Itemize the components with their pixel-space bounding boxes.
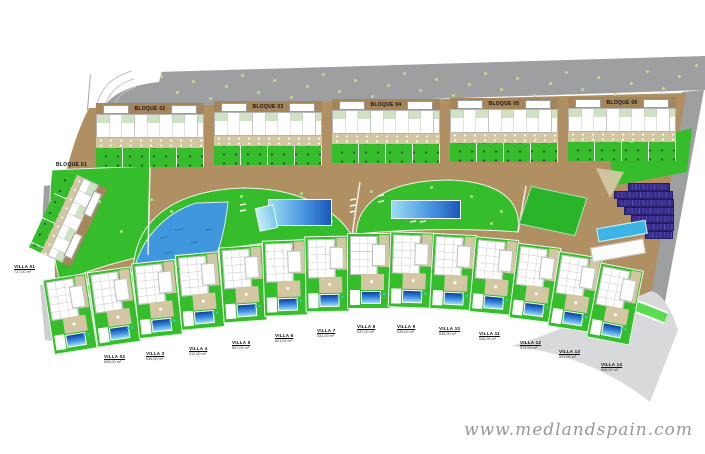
community-pool-west: [268, 199, 332, 226]
lounger-icon: [581, 315, 583, 317]
villa-house-annex: [414, 243, 429, 265]
lounger-icon: [424, 292, 426, 294]
villa-label-4: VILLA 4512,00 m²: [189, 346, 231, 356]
villa-terrace: [361, 274, 384, 290]
villa-pool-deck: [350, 290, 360, 305]
bloque-01-label: BLOQUE 01: [56, 162, 87, 168]
lounger-icon: [379, 293, 381, 295]
bloque-lawn: [450, 143, 558, 162]
villa-plot-7: [304, 236, 349, 313]
bloque-05: BLOQUE 05: [450, 98, 558, 162]
tree-icon: [470, 195, 473, 198]
lounger-icon: [87, 333, 89, 335]
lounger-icon: [466, 295, 468, 297]
bloque-terraces: [332, 134, 440, 144]
villa-pool-deck: [140, 319, 152, 335]
solar-row: [614, 191, 673, 199]
lounger-icon: [296, 300, 298, 302]
lounger-icon: [624, 328, 626, 330]
villa-label-13: VILLA 13591,00 m²: [559, 349, 601, 359]
bloque-roof: BLOQUE 06: [568, 97, 676, 108]
villa-label-11: VILLA 11536,00 m²: [479, 331, 521, 341]
tree-icon: [484, 72, 487, 75]
tree-icon: [241, 74, 244, 77]
lounger-icon: [462, 294, 464, 296]
tree-icon: [695, 64, 698, 67]
villa-label-9: VILLA 9539,00 m²: [397, 324, 439, 334]
villa-area: 605,00 m²: [104, 360, 146, 365]
tree-icon: [468, 83, 471, 86]
tree-icon: [614, 93, 617, 96]
bloque-lawn: [332, 144, 440, 163]
villa-pool-deck: [391, 288, 402, 303]
bloque-label: BLOQUE 02: [96, 106, 204, 112]
villa-pool-deck: [267, 297, 278, 312]
villa-plot-5: [218, 245, 267, 324]
villa-label-3: VILLA 3536,00 m²: [146, 351, 188, 361]
lounger-icon: [300, 299, 302, 301]
villa-terrace: [444, 275, 468, 292]
tree-icon: [120, 230, 123, 233]
bloque-terraces: [96, 138, 204, 148]
tree-icon: [98, 200, 101, 203]
bloque-lawn: [96, 148, 204, 167]
watermark: www.medlandspain.com: [464, 420, 693, 440]
lounger-icon: [337, 296, 339, 298]
bloque-roof: BLOQUE 02: [96, 103, 204, 114]
villa-plot-9: [388, 231, 435, 308]
villa-label-12: VILLA 12574,00 m²: [520, 340, 562, 350]
bloque-lawn: [214, 146, 322, 165]
tree-icon: [160, 75, 163, 78]
tree-icon: [209, 97, 212, 100]
bloque-04: BLOQUE 04: [332, 99, 440, 163]
villa-terrace: [277, 280, 301, 297]
villa-area: 531,00 m²: [317, 334, 359, 339]
lounger-icon: [546, 307, 548, 309]
villa-area: 539,00 m²: [397, 330, 439, 335]
lounger-icon: [502, 299, 504, 301]
bloque-roof: BLOQUE 05: [450, 98, 558, 109]
tree-icon: [660, 135, 663, 138]
villa-label-8: VILLA 8537,00 m²: [357, 324, 399, 334]
solar-row: [624, 207, 674, 215]
villa-pool-deck: [98, 327, 110, 343]
villa-terrace: [149, 300, 174, 318]
villa-terrace: [319, 277, 342, 293]
villa-area: 536,00 m²: [146, 357, 188, 362]
lounger-icon: [341, 296, 343, 298]
lounger-icon: [169, 320, 171, 322]
tree-icon: [306, 85, 309, 88]
lounger-icon: [620, 328, 622, 330]
solar-row: [645, 231, 673, 239]
villa-pool-deck: [308, 293, 318, 308]
villa-terrace: [525, 285, 550, 304]
villa-pool: [562, 311, 584, 327]
villa-pool-deck: [225, 304, 236, 320]
lounger-icon: [83, 334, 85, 336]
villa-area: 512,00 m²: [189, 352, 231, 357]
lounger-icon: [383, 293, 385, 295]
villa-house-annex: [157, 270, 173, 293]
tree-icon: [500, 210, 503, 213]
villa-pool: [523, 302, 544, 317]
tree-icon: [150, 198, 153, 201]
tree-icon: [533, 94, 536, 97]
bloque-02: BLOQUE 02: [96, 103, 204, 167]
bloque-building: [450, 109, 558, 133]
bloque-terraces: [450, 133, 558, 143]
tree-icon: [170, 210, 173, 213]
tree-icon: [387, 84, 390, 87]
solar-row: [628, 183, 670, 191]
villa-house-annex: [539, 257, 556, 281]
bloque-building: [96, 114, 204, 138]
bloque-06: BLOQUE 06: [568, 97, 676, 161]
villa-label-14: VILLA 14608,00 m²: [601, 362, 643, 372]
villa-terrace: [192, 293, 216, 311]
villa-area: 538,00 m²: [439, 332, 481, 337]
villa-pool-deck: [183, 311, 194, 327]
villa-pool-deck: [432, 290, 443, 306]
lounger-icon: [255, 305, 257, 307]
villa-house-annex: [287, 250, 302, 272]
villa-area: 574,00 m²: [520, 346, 562, 351]
tree-icon: [257, 91, 260, 94]
villa-area: 537,00 m²: [357, 330, 399, 335]
bloque-roof: BLOQUE 03: [214, 101, 322, 112]
villa-plot-4: [175, 251, 225, 331]
bloque-building: [568, 108, 676, 132]
site-plan: BLOQUE 01 BLOQUE 02BLOQUE 03BLOQUE 04BLO…: [0, 0, 705, 454]
lounger-icon: [131, 327, 133, 329]
villa-label-1: VILLA 01727,00 m²: [14, 264, 56, 274]
lounger-icon: [212, 312, 214, 314]
villa-plot-8: [347, 233, 391, 309]
tree-icon: [630, 140, 633, 143]
bloque-terraces: [214, 136, 322, 146]
villa-house-annex: [201, 263, 217, 286]
villa-label-6: VILLA 6521,00 m²: [275, 333, 317, 343]
villa-house-annex: [456, 245, 471, 268]
villa-pool: [601, 322, 623, 339]
tree-icon: [371, 95, 374, 98]
villa-area: 536,00 m²: [479, 337, 521, 342]
bloque-03: BLOQUE 03: [214, 101, 322, 165]
villa-terrace: [484, 278, 508, 296]
villa-label-2: VILLA 02605,00 m²: [104, 354, 146, 364]
villa-house-annex: [497, 249, 513, 272]
bloque-label: BLOQUE 05: [450, 101, 558, 107]
villa-pool: [483, 295, 504, 310]
lounger-icon: [259, 305, 261, 307]
villa-plot-6: [262, 239, 309, 316]
community-pool-central: [391, 200, 461, 219]
villa-house-annex: [244, 256, 260, 279]
villa-plot-3: [131, 259, 183, 339]
lounger-icon: [420, 292, 422, 294]
tree-icon: [290, 96, 293, 99]
solar-row: [617, 199, 674, 207]
lounger-icon: [173, 319, 175, 321]
lounger-icon: [542, 306, 544, 308]
villa-label-10: VILLA 10538,00 m²: [439, 326, 481, 336]
villa-house-annex: [330, 247, 344, 269]
tree-icon: [430, 186, 433, 189]
tree-icon: [240, 195, 243, 198]
bloque-label: BLOQUE 04: [332, 102, 440, 108]
lounger-icon: [585, 316, 587, 318]
villa-area: 591,00 m²: [559, 355, 601, 360]
lounger-icon: [127, 327, 129, 329]
bloque-roof: BLOQUE 04: [332, 99, 440, 110]
villa-area: 521,00 m²: [275, 339, 317, 344]
villa-house-annex: [113, 278, 130, 302]
villa-area: 727,00 m²: [14, 270, 56, 275]
villa-area: 507,00 m²: [232, 346, 274, 351]
tree-icon: [300, 192, 303, 195]
villa-terrace: [235, 286, 259, 304]
villa-label-7: VILLA 7531,00 m²: [317, 328, 359, 338]
tree-icon: [581, 88, 584, 91]
villa-house-annex: [372, 244, 386, 266]
tree-icon: [490, 222, 493, 225]
bloque-label: BLOQUE 03: [214, 104, 322, 110]
villa-pool: [361, 291, 381, 304]
tree-icon: [370, 190, 373, 193]
villa-terrace: [106, 308, 131, 327]
lounger-icon: [506, 299, 508, 301]
bloque-lawn: [568, 142, 676, 161]
villa-label-5: VILLA 5507,00 m²: [232, 340, 274, 350]
villa-pool-deck: [512, 300, 524, 316]
bloque-building: [214, 112, 322, 136]
lounger-icon: [216, 312, 218, 314]
tree-icon: [565, 71, 568, 74]
villa-area: 608,00 m²: [601, 368, 643, 373]
bloque-label: BLOQUE 06: [568, 100, 676, 106]
tree-icon: [630, 82, 633, 85]
bloque-building: [332, 110, 440, 134]
villa-terrace: [402, 273, 426, 290]
villa-pool-deck: [472, 293, 483, 309]
